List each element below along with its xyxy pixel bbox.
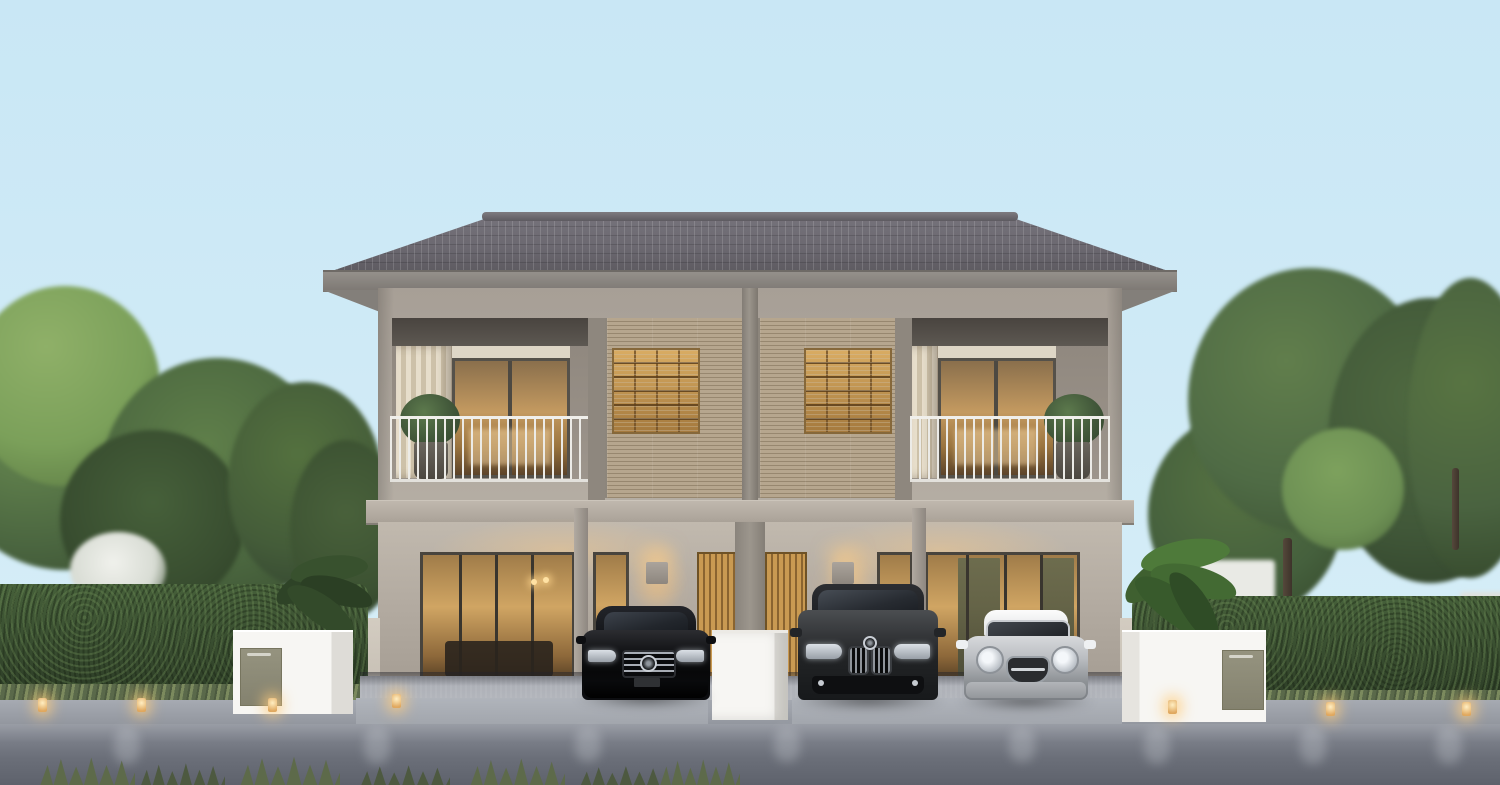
center-gate-box [712, 630, 788, 720]
lit-shelf-window-left [612, 348, 700, 434]
gate-pillar-right [1122, 630, 1266, 722]
unit-divider [742, 288, 758, 512]
front-bumper-intake [812, 676, 924, 694]
kidney-grille [871, 646, 892, 675]
lawn-light [1326, 702, 1335, 716]
light-reflection [364, 728, 390, 764]
mercedes-star-emblem [640, 655, 657, 672]
fog-light [912, 680, 918, 686]
road-sheen [0, 724, 1500, 742]
lawn-light [137, 698, 146, 712]
kidney-grille [848, 646, 869, 675]
front-bumper [966, 682, 1086, 698]
fog-light [818, 680, 824, 686]
lit-shelf-window-right [804, 348, 892, 434]
mailbox-handle [247, 653, 271, 656]
headlight [894, 644, 930, 659]
headlight [588, 650, 616, 662]
balcony-header-right [912, 318, 1108, 346]
tree-trunk [1452, 468, 1459, 550]
balcony-header-left [392, 318, 588, 346]
lawn-light [1168, 700, 1177, 714]
side-mirror [790, 628, 802, 637]
light-reflection [1144, 728, 1170, 764]
lawn-light [1462, 702, 1471, 716]
headlight [806, 644, 842, 659]
side-mirror [706, 636, 716, 644]
balcony-railing-left [390, 416, 590, 482]
light-reflection [1009, 728, 1035, 762]
tree-canopy-bright [1282, 428, 1404, 550]
rendering-scene [0, 0, 1500, 785]
gate-pillar-left [233, 630, 353, 714]
light-reflection [1436, 728, 1462, 764]
pendant-light [531, 579, 537, 585]
screen-mullion-wall [588, 318, 605, 500]
side-mirror [576, 636, 586, 644]
balcony-railing-right [910, 416, 1110, 482]
side-mirror [1084, 640, 1096, 649]
bmw-roundel [863, 636, 877, 650]
mailbox-handle [1229, 655, 1253, 658]
wall-sconce-left [646, 562, 668, 584]
light-reflection [774, 728, 800, 762]
living-room-glass-doors-left [420, 552, 575, 688]
round-headlight [976, 646, 1004, 674]
mini-grille [1006, 656, 1050, 684]
headlight [676, 650, 704, 662]
grille-chrome-bar [1011, 668, 1045, 671]
lawn-light [268, 698, 277, 712]
light-reflection [114, 728, 140, 764]
light-reflection [575, 728, 601, 762]
roof-ridge [482, 212, 1018, 221]
round-headlight [1051, 646, 1079, 674]
mailbox-panel [1222, 650, 1264, 710]
light-reflection [1300, 728, 1326, 764]
license-plate [634, 678, 660, 687]
lawn-light [38, 698, 47, 712]
pendant-light [543, 577, 549, 583]
side-mirror [934, 628, 946, 637]
side-mirror [956, 640, 968, 649]
wall-sconce-right [832, 562, 854, 584]
lawn-light [392, 694, 401, 708]
